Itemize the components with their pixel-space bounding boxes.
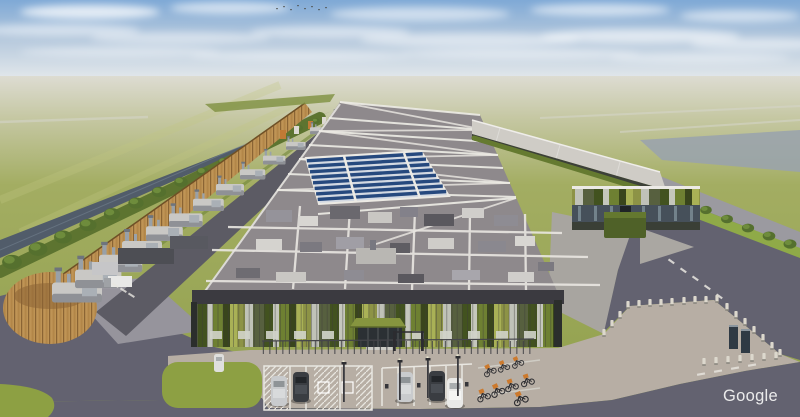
car-white [447,378,463,408]
car-silver [271,376,287,406]
car-dark-2 [429,371,445,401]
google-watermark: Google [723,387,778,405]
car-white-far [214,354,224,372]
car-dark [293,372,309,402]
gatehouse-roof-edge [572,186,700,189]
facade-corner-left [191,302,197,347]
gate-post [393,331,396,351]
white-truck [108,276,132,287]
gatehouse-cladding [572,189,700,205]
parapet [192,290,564,304]
gate-post [421,331,424,351]
entrance-canopy [350,318,406,327]
grass-island [162,362,262,408]
facility-render: Google [0,0,800,417]
render-canvas: Google [0,0,800,417]
facade-corner-right [554,300,562,347]
